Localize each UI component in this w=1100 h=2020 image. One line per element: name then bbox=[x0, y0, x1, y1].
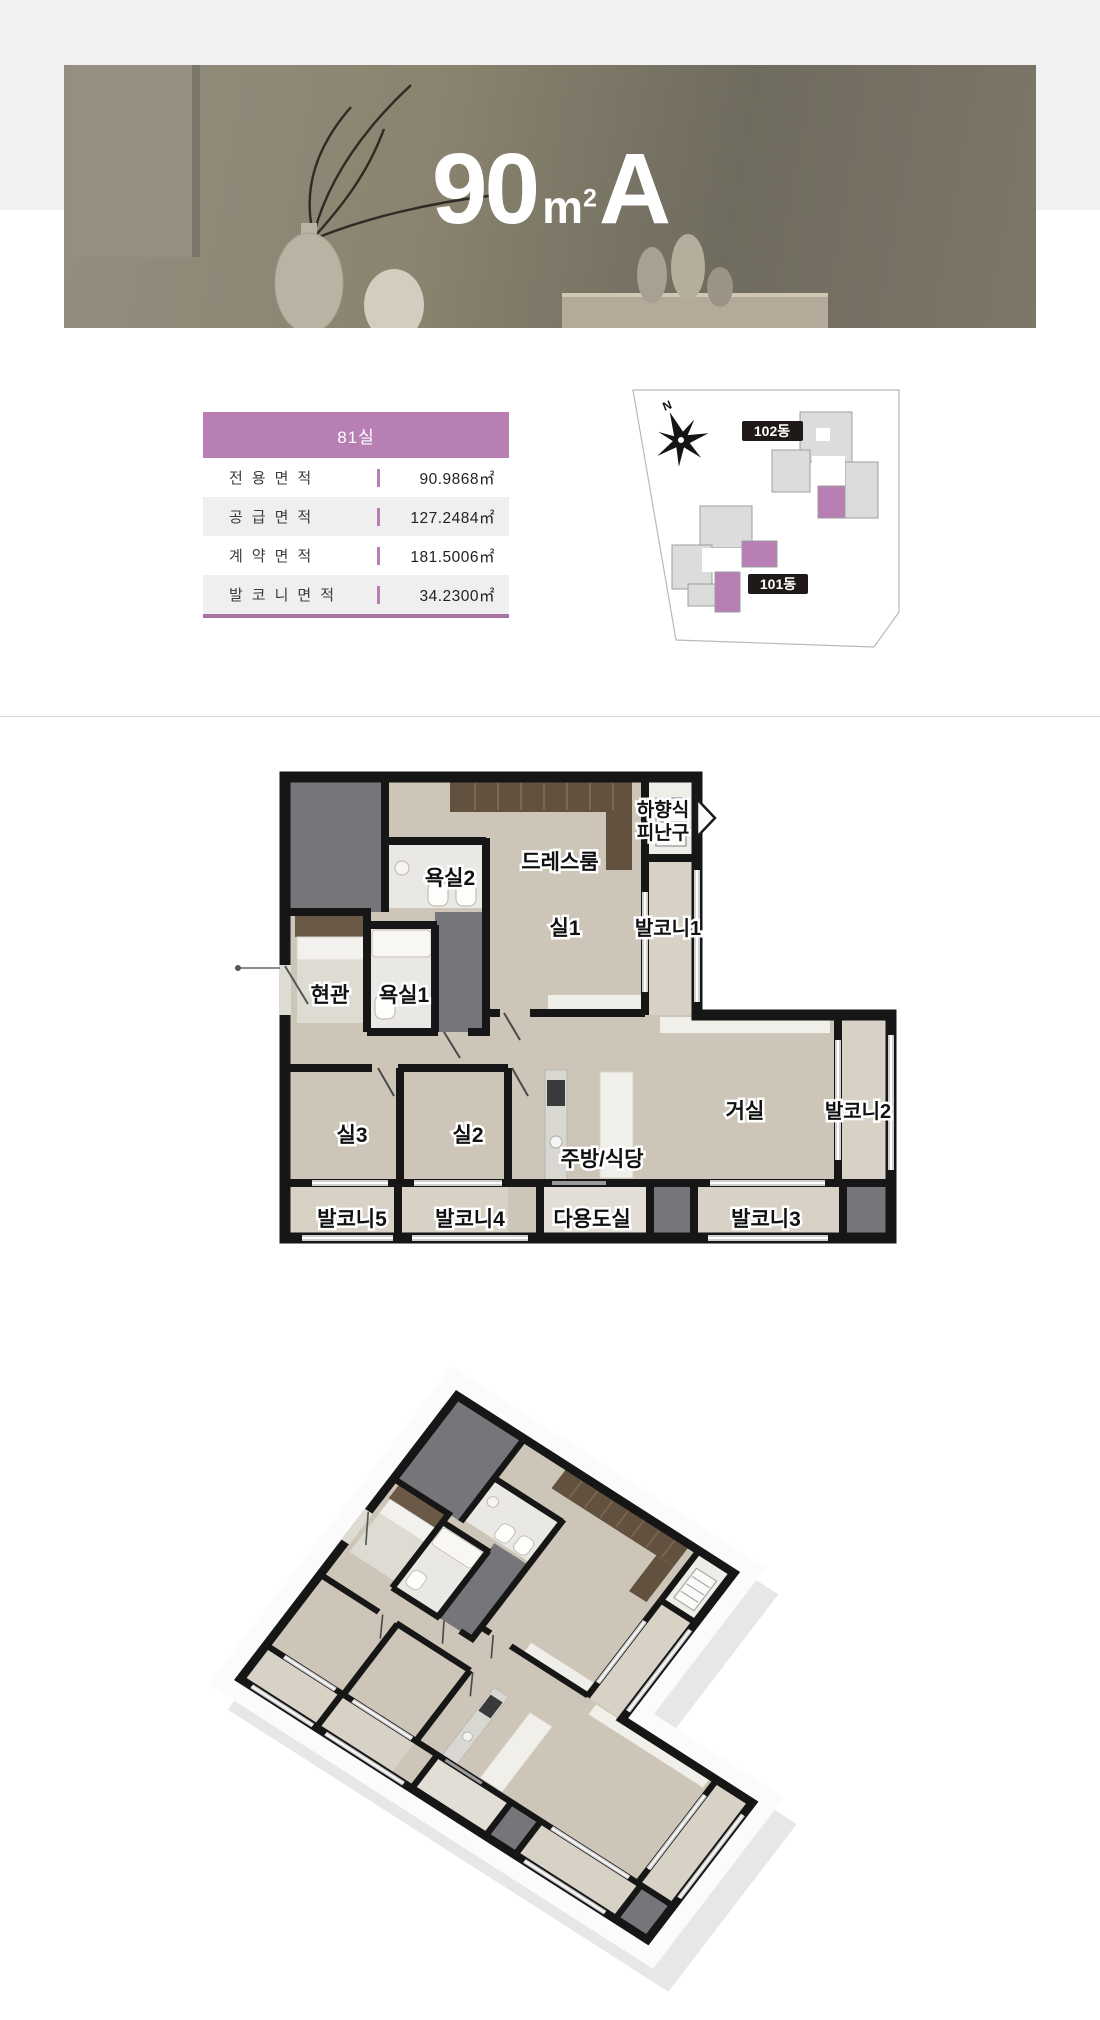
row-label: 발코니면적 bbox=[203, 584, 377, 605]
room-label-balcony5: 발코니5 bbox=[317, 1208, 387, 1231]
entry-door-indicator bbox=[235, 965, 280, 971]
unit-count-header: 81실 bbox=[203, 412, 509, 458]
building-label-102: 102동 bbox=[754, 423, 790, 439]
row-value: 127.2484㎡ bbox=[380, 506, 509, 528]
banner-title: 90m2A bbox=[64, 65, 1036, 328]
area-unit: m bbox=[542, 181, 583, 233]
area-info-table: 81실 전용면적 90.9868㎡ 공급면적 127.2484㎡ 계약면적 18… bbox=[203, 412, 509, 618]
table-row-balcony-area: 발코니면적 34.2300㎡ bbox=[203, 575, 509, 614]
room-label-kitchen: 주방/식당 bbox=[560, 1148, 643, 1171]
floor-plan-2d: 드레스룸 하향식 피난구 욕실2 실1 발코니1 현관 욕실1 실3 실2 주방… bbox=[225, 762, 915, 1257]
room-label-bath1: 욕실1 bbox=[379, 984, 430, 1007]
floor-plan-3d bbox=[140, 1320, 920, 2010]
room-label-utility: 다용도실 bbox=[553, 1208, 630, 1231]
row-value: 34.2300㎡ bbox=[380, 584, 509, 606]
area-unit-sup: 2 bbox=[583, 185, 597, 213]
section-divider-line bbox=[0, 716, 1100, 717]
table-row-exclusive-area: 전용면적 90.9868㎡ bbox=[203, 458, 509, 497]
page-root: 90m2A 81실 전용면적 90.9868㎡ 공급면적 127.2484㎡ 계… bbox=[0, 0, 1100, 2020]
room-label-balcony2: 발코니2 bbox=[825, 1100, 891, 1123]
table-row-contract-area: 계약면적 181.5006㎡ bbox=[203, 536, 509, 575]
room-label-dressroom: 드레스룸 bbox=[521, 851, 598, 874]
area-number: 90 bbox=[432, 133, 537, 245]
row-value: 90.9868㎡ bbox=[380, 467, 509, 489]
table-row-supply-area: 공급면적 127.2484㎡ bbox=[203, 497, 509, 536]
room-label-balcony3: 발코니3 bbox=[731, 1208, 801, 1231]
table-bottom-accent bbox=[203, 614, 509, 618]
site-map: 102동 101동 N bbox=[620, 383, 910, 655]
room-label-room2: 실2 bbox=[453, 1124, 484, 1147]
area-type-letter: A bbox=[599, 133, 668, 245]
escape-hatch-label-line1: 하향식 bbox=[637, 799, 689, 821]
building-label-101: 101동 bbox=[760, 576, 796, 592]
room-label-room1: 실1 bbox=[550, 917, 581, 940]
row-label: 전용면적 bbox=[203, 467, 377, 488]
room-label-entrance: 현관 bbox=[311, 984, 350, 1007]
escape-hatch-arrow-icon bbox=[697, 799, 715, 837]
room-label-room3: 실3 bbox=[337, 1124, 368, 1147]
row-label: 계약면적 bbox=[203, 545, 377, 566]
room-label-living: 거실 bbox=[726, 1100, 765, 1123]
highlighted-unit-101a bbox=[742, 541, 777, 567]
row-value: 181.5006㎡ bbox=[380, 545, 509, 567]
row-label: 공급면적 bbox=[203, 506, 377, 527]
unit-banner: 90m2A bbox=[64, 65, 1036, 328]
escape-hatch-label-line2: 피난구 bbox=[637, 822, 689, 844]
room-label-bath2: 욕실2 bbox=[425, 867, 475, 890]
highlighted-unit-102 bbox=[818, 486, 845, 518]
room-label-balcony4: 발코니4 bbox=[435, 1208, 505, 1231]
highlighted-unit-101b bbox=[715, 572, 740, 612]
room-label-balcony1: 발코니1 bbox=[635, 917, 701, 940]
